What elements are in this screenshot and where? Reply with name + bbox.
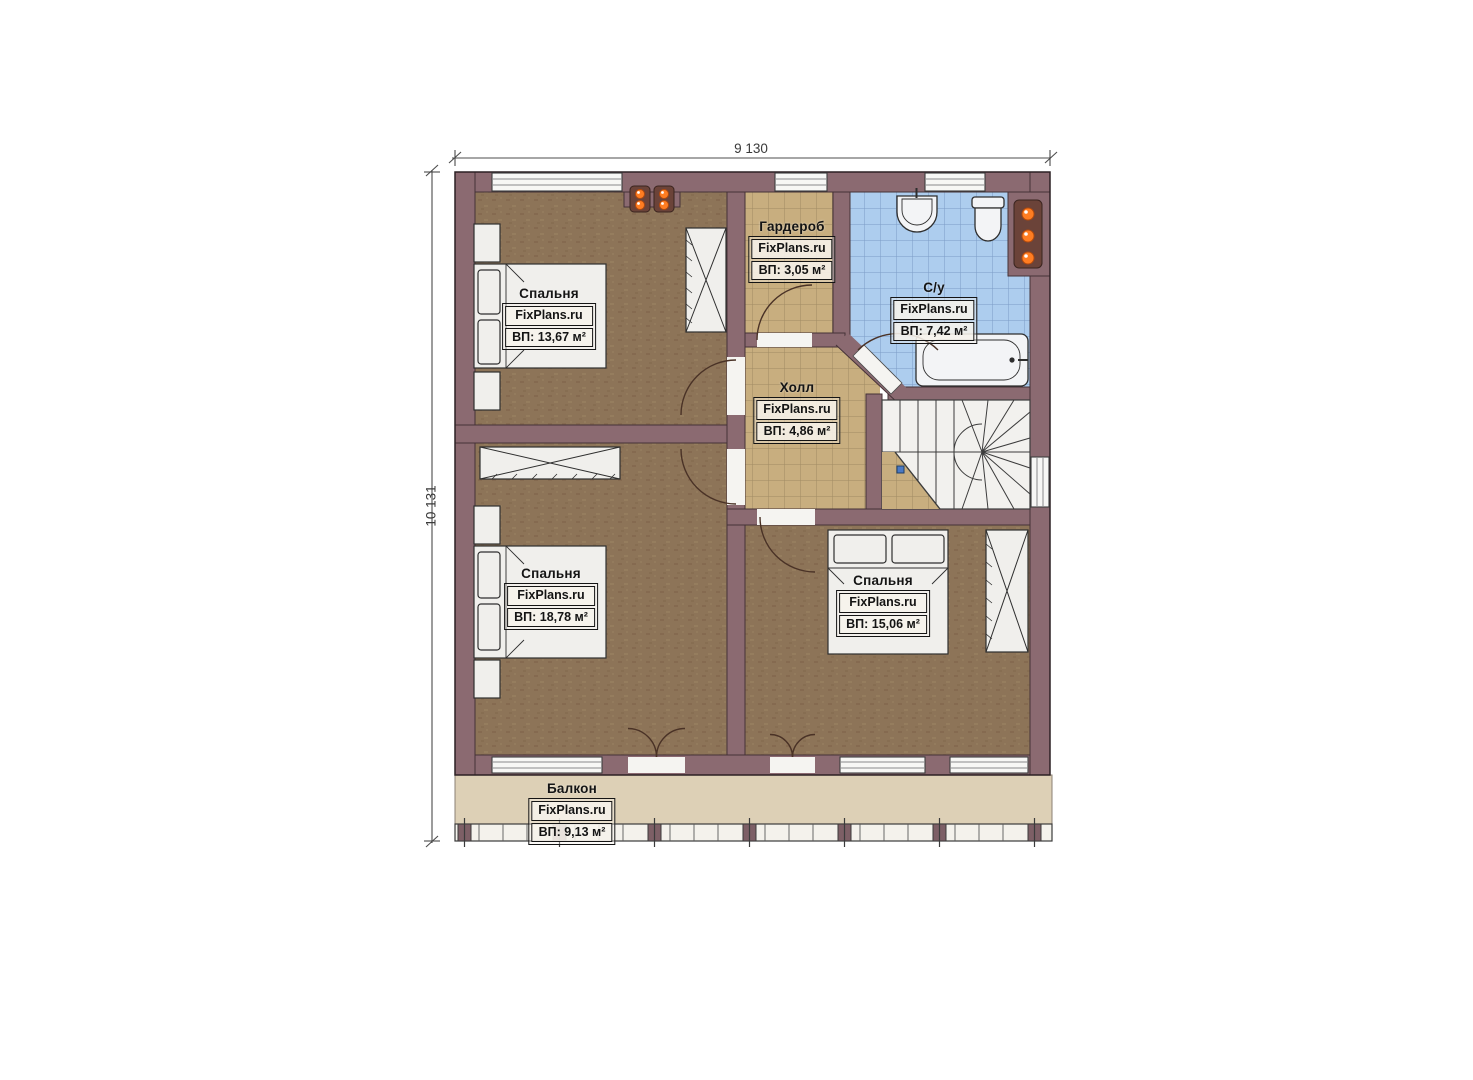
room-label-wardrobe: Гардероб FixPlans.ru ВП: 3,05 м² bbox=[748, 219, 835, 283]
room-info-box: FixPlans.ru ВП: 13,67 м² bbox=[502, 303, 596, 350]
window-bottom-right-b bbox=[950, 757, 1028, 773]
bathtub-basin bbox=[923, 340, 1020, 380]
sink-basin bbox=[902, 199, 932, 225]
opening-wardrobe bbox=[757, 333, 812, 347]
opening-bedroom-top-left bbox=[727, 357, 745, 415]
brand-label: FixPlans.ru bbox=[751, 239, 832, 259]
nightstand bbox=[474, 660, 500, 698]
room-info-box: FixPlans.ru ВП: 15,06 м² bbox=[836, 590, 930, 637]
room-label-balcony: Балкон FixPlans.ru ВП: 9,13 м² bbox=[528, 781, 615, 845]
toilet-bowl bbox=[975, 208, 1001, 241]
dimension-height-label: 10 131 bbox=[424, 485, 439, 526]
wall-left bbox=[455, 172, 475, 775]
nightstand bbox=[474, 372, 500, 410]
room-label-bedroom-right: Спальня FixPlans.ru ВП: 15,06 м² bbox=[836, 573, 930, 637]
room-info-box: FixPlans.ru ВП: 3,05 м² bbox=[748, 236, 835, 283]
pillow bbox=[892, 535, 944, 563]
room-name: Спальня bbox=[519, 286, 579, 301]
area-label: ВП: 3,05 м² bbox=[751, 261, 832, 281]
nightstand bbox=[474, 506, 500, 544]
window-bottom-left bbox=[492, 757, 602, 773]
pillow bbox=[478, 270, 500, 314]
opening-balcony-door-1 bbox=[628, 757, 685, 773]
brand-label: FixPlans.ru bbox=[507, 586, 595, 606]
area-label: ВП: 13,67 м² bbox=[505, 328, 593, 348]
nightstand bbox=[474, 224, 500, 262]
window-top-bathroom bbox=[925, 173, 985, 191]
room-label-bedroom-top-left: Спальня FixPlans.ru ВП: 13,67 м² bbox=[502, 286, 596, 350]
room-info-box: FixPlans.ru ВП: 7,42 м² bbox=[890, 297, 977, 344]
area-label: ВП: 4,86 м² bbox=[756, 422, 837, 442]
opening-balcony-door-2 bbox=[770, 757, 815, 773]
pillow bbox=[834, 535, 886, 563]
brand-label: FixPlans.ru bbox=[531, 801, 612, 821]
brand-label: FixPlans.ru bbox=[839, 593, 927, 613]
brand-label: FixPlans.ru bbox=[893, 300, 974, 320]
window-top-bedroom bbox=[492, 173, 622, 191]
dimension-width-label: 9 130 bbox=[734, 141, 768, 156]
room-name: Балкон bbox=[547, 781, 597, 796]
window-bottom-right-a bbox=[840, 757, 925, 773]
area-label: ВП: 15,06 м² bbox=[839, 615, 927, 635]
pillow bbox=[478, 320, 500, 364]
room-name: Спальня bbox=[853, 573, 913, 588]
room-label-bathroom: С/у FixPlans.ru ВП: 7,42 м² bbox=[890, 280, 977, 344]
room-label-bedroom-middle: Спальня FixPlans.ru ВП: 18,78 м² bbox=[504, 566, 598, 630]
bathtub-drain bbox=[1009, 357, 1014, 362]
room-name: С/у bbox=[923, 280, 945, 295]
toilet-tank bbox=[972, 197, 1004, 208]
window-stairs bbox=[1031, 457, 1049, 507]
brand-label: FixPlans.ru bbox=[756, 400, 837, 420]
room-label-hall: Холл FixPlans.ru ВП: 4,86 м² bbox=[753, 380, 840, 444]
wall-stairs-left bbox=[866, 394, 882, 509]
room-name: Спальня bbox=[521, 566, 581, 581]
stairs-marker bbox=[897, 466, 904, 473]
pillow bbox=[478, 552, 500, 598]
opening-bedroom-middle bbox=[727, 449, 745, 505]
floor-plan-drawing bbox=[0, 0, 1473, 1080]
room-info-box: FixPlans.ru ВП: 18,78 м² bbox=[504, 583, 598, 630]
staircase bbox=[882, 400, 1030, 509]
room-info-box: FixPlans.ru ВП: 4,86 м² bbox=[753, 397, 840, 444]
area-label: ВП: 9,13 м² bbox=[531, 823, 612, 843]
room-name: Гардероб bbox=[759, 219, 824, 234]
opening-bedroom-right bbox=[757, 509, 815, 525]
area-label: ВП: 7,42 м² bbox=[893, 322, 974, 342]
window-top-wardrobe bbox=[775, 173, 827, 191]
wall-bedrooms-divider bbox=[455, 425, 727, 443]
floor-plan-canvas: 9 130 10 131 Спальня FixPlans.ru ВП: 13,… bbox=[0, 0, 1473, 1080]
room-name: Холл bbox=[780, 380, 815, 395]
room-info-box: FixPlans.ru ВП: 9,13 м² bbox=[528, 798, 615, 845]
pillow bbox=[478, 604, 500, 650]
area-label: ВП: 18,78 м² bbox=[507, 608, 595, 628]
brand-label: FixPlans.ru bbox=[505, 306, 593, 326]
